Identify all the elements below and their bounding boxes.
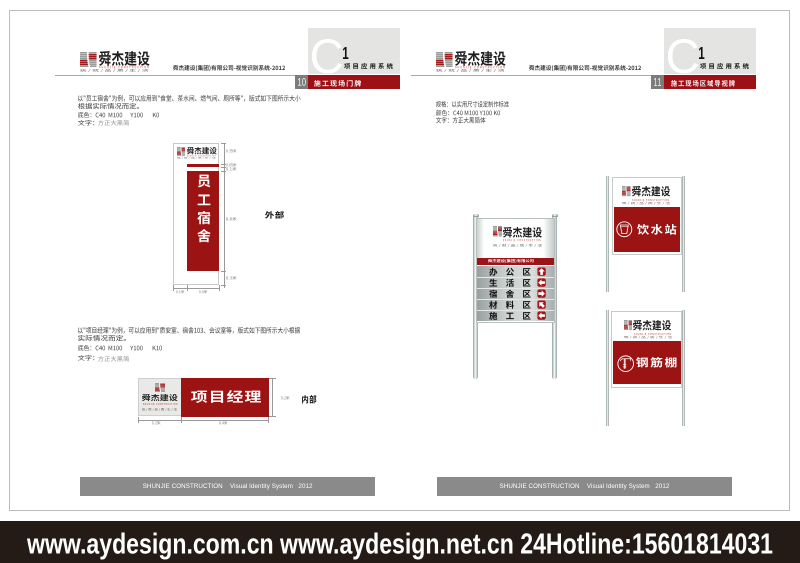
svg-text:www.aydesign.com.cn www.aydesi: www.aydesign.com.cn www.aydesign.net.cn … (26, 529, 773, 561)
